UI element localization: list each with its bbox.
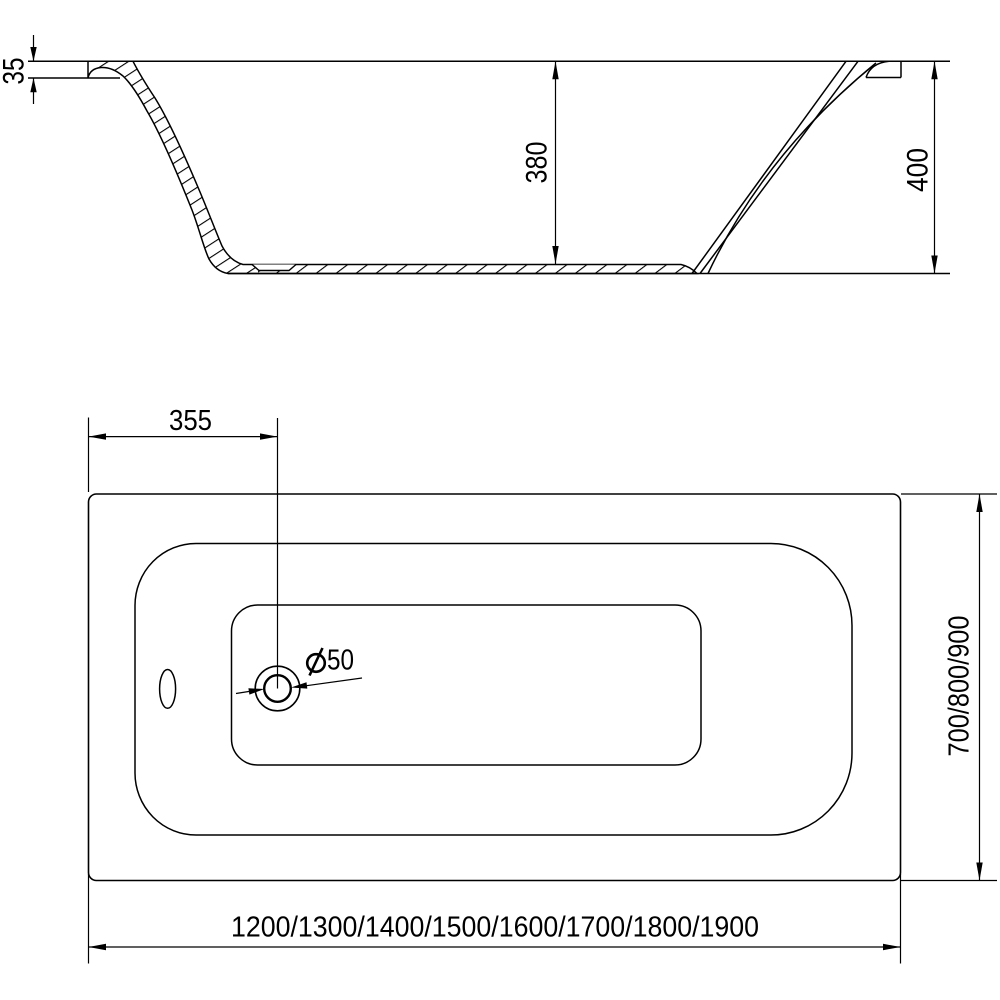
svg-text:35: 35: [0, 58, 31, 85]
svg-text:1200/1300/1400/1500/1600/1700/: 1200/1300/1400/1500/1600/1700/1800/1900: [231, 912, 759, 944]
svg-text:380: 380: [521, 142, 554, 184]
svg-text:700/800/900: 700/800/900: [944, 616, 976, 757]
svg-text:400: 400: [902, 148, 935, 192]
svg-text:355: 355: [169, 405, 212, 437]
svg-text:50: 50: [327, 645, 354, 677]
